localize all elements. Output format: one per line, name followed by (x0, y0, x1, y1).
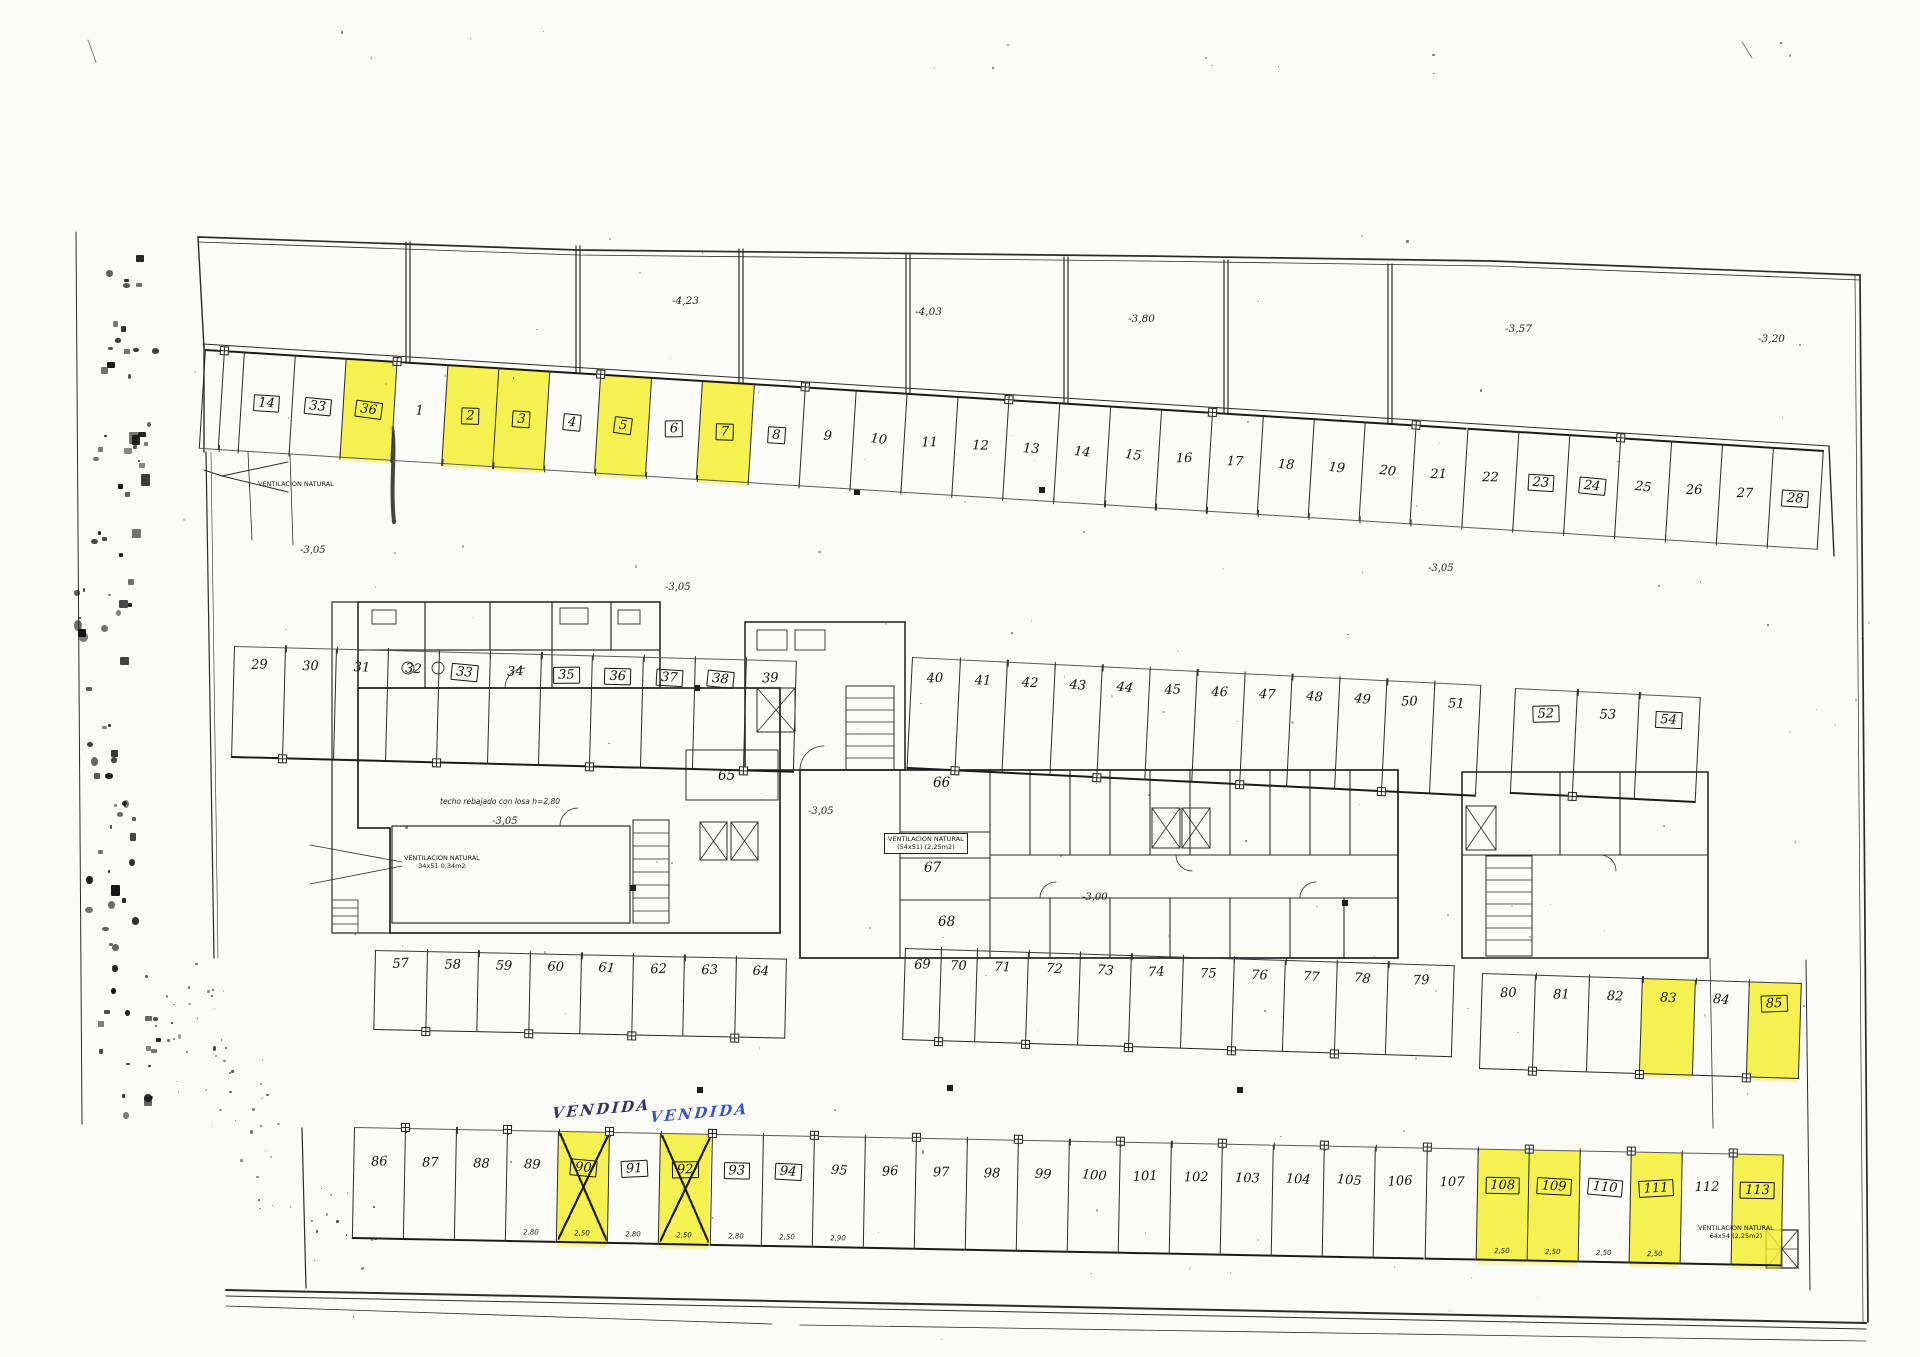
left-core (332, 602, 780, 933)
right-courtyard-walls (1710, 958, 1810, 1290)
vent-leader (310, 845, 402, 884)
scanned-garage-floor-plan: 1433361234567891011121314151617181920212… (0, 0, 1920, 1357)
bottom-left-wall (302, 1128, 306, 1288)
left-boundary-walls (206, 452, 293, 958)
scan-streak (392, 428, 394, 522)
site-boundary (76, 232, 1868, 1341)
plan-walls-layer (0, 0, 1920, 1357)
vent-arrow (204, 462, 288, 492)
ramp-walls (406, 242, 1392, 423)
row1-outer-wall (203, 344, 1834, 556)
scan-scratch (88, 40, 1752, 62)
right-core (800, 770, 1398, 958)
vent-hatch-square (1766, 1230, 1798, 1268)
right-stair-core (1462, 772, 1708, 958)
column-marks (630, 487, 1348, 1093)
center-stair-core (745, 622, 905, 770)
